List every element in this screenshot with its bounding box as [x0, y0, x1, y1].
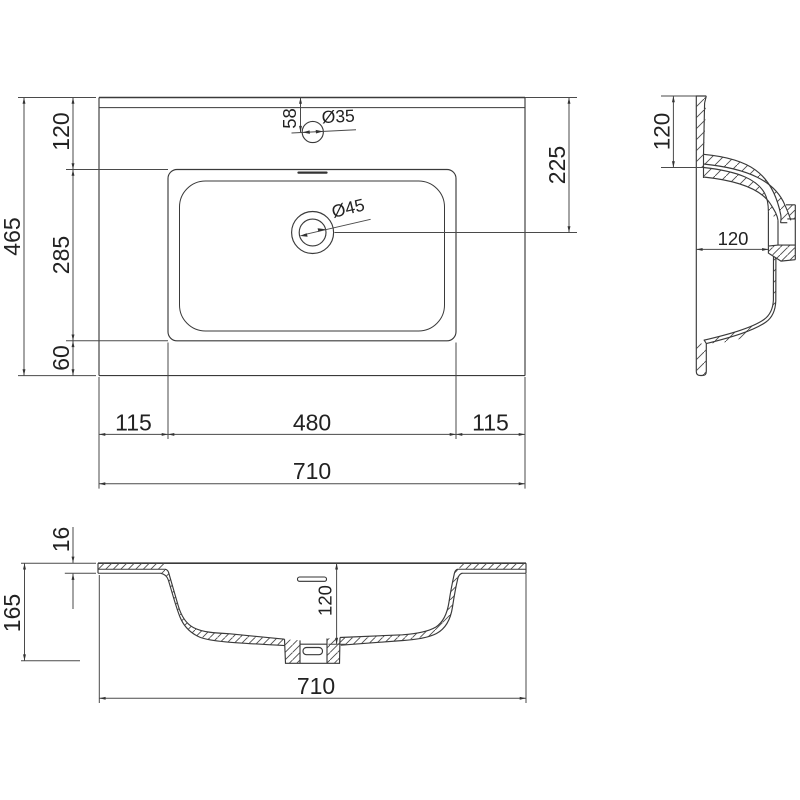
svg-text:225: 225	[544, 146, 570, 184]
svg-text:120: 120	[48, 112, 74, 150]
svg-text:115: 115	[115, 410, 152, 436]
svg-text:60: 60	[48, 345, 74, 371]
svg-text:58: 58	[279, 108, 300, 129]
svg-text:710: 710	[293, 458, 331, 484]
svg-text:16: 16	[48, 527, 74, 553]
svg-text:120: 120	[718, 228, 749, 249]
svg-text:Ø35: Ø35	[321, 106, 355, 128]
svg-text:285: 285	[48, 236, 74, 274]
svg-text:465: 465	[0, 217, 25, 255]
svg-text:120: 120	[315, 585, 336, 616]
svg-text:115: 115	[472, 410, 509, 436]
svg-text:120: 120	[650, 113, 675, 151]
svg-text:710: 710	[297, 673, 335, 699]
svg-text:165: 165	[0, 594, 25, 632]
svg-text:480: 480	[293, 410, 331, 436]
